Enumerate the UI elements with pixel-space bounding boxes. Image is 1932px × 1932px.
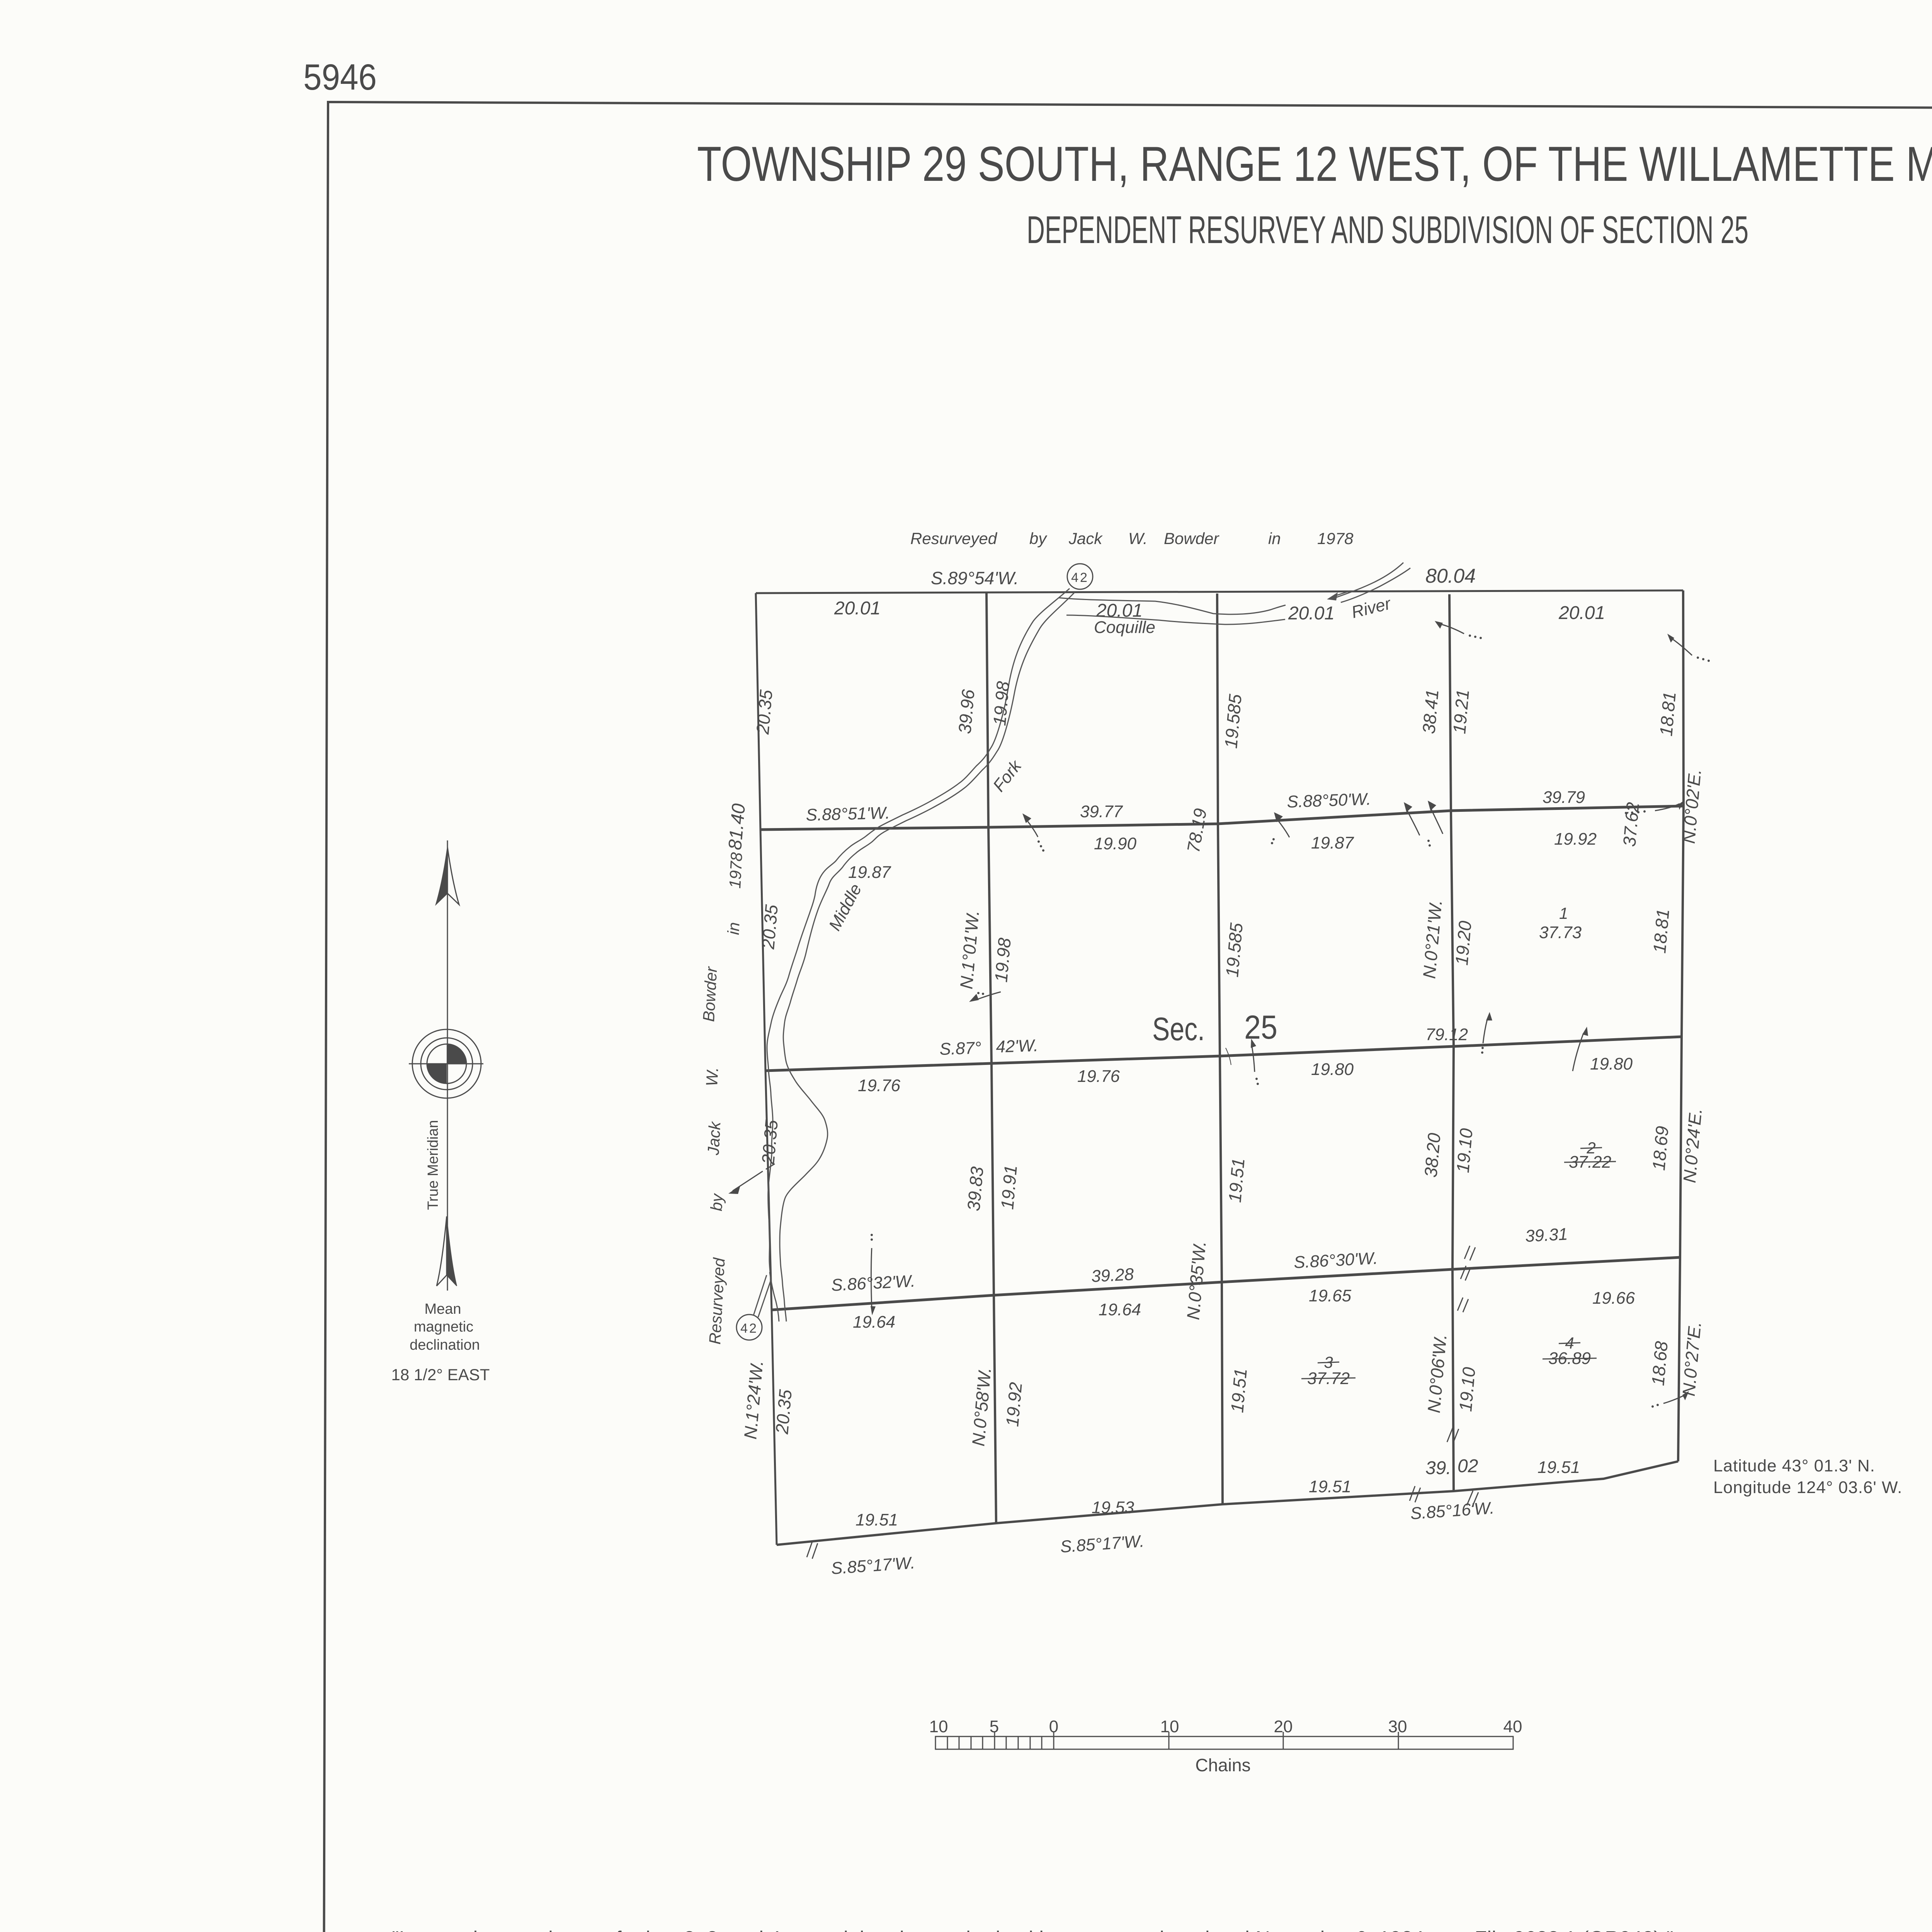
svg-text:20.01: 20.01 (1288, 603, 1335, 624)
svg-text:5: 5 (990, 1717, 999, 1736)
svg-text:39.79: 39.79 (1543, 788, 1585, 807)
svg-text:N.0°58'W.: N.0°58'W. (968, 1367, 995, 1447)
svg-text:19.51: 19.51 (1309, 1477, 1351, 1496)
svg-text:N.0°27'E.: N.0°27'E. (1679, 1321, 1705, 1397)
svg-text:19.21: 19.21 (1449, 689, 1473, 735)
svg-text:19.51: 19.51 (1227, 1367, 1251, 1413)
svg-text:19.87: 19.87 (1311, 833, 1354, 852)
svg-text:19.76: 19.76 (858, 1076, 901, 1095)
svg-text:79.12: 79.12 (1425, 1025, 1468, 1044)
svg-text:18.81: 18.81 (1656, 691, 1680, 737)
svg-text:River: River (1350, 594, 1394, 622)
svg-text:N.0°35'W.: N.0°35'W. (1183, 1240, 1210, 1321)
svg-text:20.01: 20.01 (834, 598, 881, 619)
svg-text:1: 1 (1559, 904, 1568, 922)
svg-text:declination: declination (410, 1337, 480, 1353)
svg-text:19.51: 19.51 (855, 1510, 898, 1529)
svg-text:N.0°24'E.: N.0°24'E. (1679, 1107, 1706, 1184)
svg-text:37.73: 37.73 (1539, 923, 1582, 942)
svg-text:19.98: 19.98 (991, 937, 1015, 983)
svg-text:in: in (724, 922, 743, 935)
svg-text:19.90: 19.90 (1094, 834, 1137, 853)
svg-text:N.0°06'W.: N.0°06'W. (1423, 1333, 1451, 1414)
svg-text:S.88°51'W.: S.88°51'W. (806, 803, 890, 825)
svg-text:19.51: 19.51 (1537, 1458, 1580, 1477)
svg-text:39.31: 39.31 (1525, 1225, 1568, 1246)
svg-text:S.89°54'W.: S.89°54'W. (931, 568, 1019, 588)
svg-text:Resurveyed: Resurveyed (910, 529, 998, 548)
svg-text:18.69: 18.69 (1648, 1125, 1672, 1171)
svg-text:10: 10 (929, 1717, 948, 1736)
svg-text:19.585: 19.585 (1221, 693, 1245, 749)
svg-text:DEPENDENT RESURVEY AND SUBDIVI: DEPENDENT RESURVEY AND SUBDIVISION OF SE… (1027, 208, 1748, 252)
svg-text:20.35: 20.35 (772, 1389, 796, 1435)
svg-text:Jack: Jack (1068, 529, 1103, 548)
svg-text:TOWNSHIP 29 SOUTH, RANGE 12 WE: TOWNSHIP 29 SOUTH, RANGE 12 WEST, OF THE… (697, 136, 1932, 191)
svg-text:"Lot numbers and areas for lot: "Lot numbers and areas for lots 2, 3, an… (392, 1927, 1673, 1932)
svg-text:19.65: 19.65 (1309, 1286, 1352, 1305)
svg-text:19.64: 19.64 (1099, 1300, 1141, 1319)
svg-text:1978: 1978 (1317, 529, 1354, 548)
svg-text:N.1°24'W.: N.1°24'W. (740, 1360, 767, 1440)
svg-text:39.96: 39.96 (954, 689, 978, 735)
svg-text:20.35: 20.35 (758, 904, 782, 951)
svg-text:25: 25 (1244, 1009, 1277, 1046)
svg-text:20.35: 20.35 (758, 1119, 782, 1166)
svg-text:S.85°16'W.: S.85°16'W. (1410, 1498, 1495, 1523)
svg-text:Bowder: Bowder (1164, 529, 1219, 548)
svg-text:19.76: 19.76 (1077, 1067, 1120, 1086)
svg-text:19.10: 19.10 (1452, 1128, 1476, 1174)
svg-text:Mean: Mean (424, 1301, 461, 1317)
svg-text:N.0°21'W.: N.0°21'W. (1419, 899, 1446, 980)
svg-text:Latitude 43° 01.3' N.: Latitude 43° 01.3' N. (1713, 1456, 1875, 1475)
svg-text:W.: W. (702, 1066, 722, 1087)
svg-text:10: 10 (1160, 1717, 1179, 1736)
svg-text:20.35: 20.35 (752, 689, 776, 736)
svg-text:19.20: 19.20 (1451, 920, 1475, 966)
svg-text:18 1/2° EAST: 18 1/2° EAST (391, 1366, 490, 1384)
svg-text:30: 30 (1388, 1717, 1407, 1736)
svg-text:19.80: 19.80 (1590, 1054, 1633, 1073)
svg-text:19.585: 19.585 (1222, 922, 1247, 978)
svg-text:39.: 39. (1425, 1458, 1451, 1478)
svg-text:39.83: 39.83 (963, 1166, 987, 1212)
svg-text:magnetic: magnetic (414, 1319, 473, 1335)
svg-text:0: 0 (1049, 1717, 1058, 1736)
svg-text:S.87°: S.87° (939, 1038, 982, 1059)
svg-text:Longitude 124° 03.6' W.: Longitude 124° 03.6' W. (1713, 1478, 1902, 1497)
svg-text:True Meridian: True Meridian (425, 1120, 441, 1210)
svg-text:19.10: 19.10 (1455, 1366, 1479, 1413)
svg-text:19.91: 19.91 (997, 1164, 1021, 1210)
svg-text:39.28: 39.28 (1091, 1265, 1134, 1286)
svg-text:42: 42 (1071, 570, 1089, 585)
svg-text:19.98: 19.98 (989, 680, 1013, 727)
svg-text:by: by (1029, 529, 1048, 548)
svg-text:37.62: 37.62 (1619, 801, 1643, 847)
svg-text:42: 42 (740, 1321, 758, 1336)
svg-text:39.77: 39.77 (1080, 802, 1123, 821)
svg-text:Chains: Chains (1195, 1755, 1250, 1775)
svg-text:38.20: 38.20 (1420, 1132, 1444, 1179)
svg-text:19.66: 19.66 (1592, 1289, 1635, 1308)
svg-text:Jack: Jack (704, 1121, 724, 1156)
svg-text:Resurveyed: Resurveyed (706, 1257, 728, 1345)
svg-text:19.64: 19.64 (853, 1313, 895, 1332)
svg-text:19.92: 19.92 (1002, 1381, 1026, 1427)
svg-text:20.01: 20.01 (1558, 603, 1605, 623)
svg-text:19.80: 19.80 (1311, 1060, 1354, 1079)
svg-text:19.92: 19.92 (1554, 830, 1597, 849)
svg-text:S.85°17'W.: S.85°17'W. (830, 1553, 915, 1578)
svg-text:Sec.: Sec. (1152, 1011, 1205, 1047)
svg-text:19.53: 19.53 (1092, 1498, 1134, 1517)
svg-text:18.68: 18.68 (1648, 1340, 1672, 1387)
svg-text:02: 02 (1458, 1456, 1478, 1476)
svg-text:Bowder: Bowder (699, 966, 720, 1022)
svg-text:1978: 1978 (726, 852, 746, 889)
svg-text:S.88°50'W.: S.88°50'W. (1287, 789, 1371, 811)
svg-text:Coquille: Coquille (1094, 618, 1155, 637)
svg-text:in: in (1268, 529, 1281, 548)
svg-text:38.41: 38.41 (1418, 689, 1442, 735)
svg-text:5946: 5946 (303, 57, 377, 98)
svg-text:N.1°01'W.: N.1°01'W. (956, 910, 983, 990)
svg-text:W.: W. (1128, 529, 1148, 548)
svg-text:S.86°32'W.: S.86°32'W. (831, 1272, 916, 1295)
svg-text:78.19: 78.19 (1183, 807, 1211, 854)
svg-text:20: 20 (1274, 1717, 1293, 1736)
svg-text:81.40: 81.40 (725, 803, 749, 851)
svg-text:19.51: 19.51 (1225, 1157, 1248, 1203)
svg-text:S.86°30'W.: S.86°30'W. (1293, 1249, 1378, 1272)
svg-text:S.85°17'W.: S.85°17'W. (1060, 1532, 1145, 1556)
svg-text:80.04: 80.04 (1425, 565, 1476, 587)
svg-text:Fork: Fork (989, 756, 1026, 795)
svg-text:18.81: 18.81 (1649, 908, 1673, 954)
svg-text:40: 40 (1503, 1717, 1522, 1736)
svg-text:Middle: Middle (825, 881, 866, 934)
svg-text:19.87: 19.87 (848, 863, 891, 882)
svg-text:42'W.: 42'W. (996, 1036, 1039, 1056)
svg-text:by: by (707, 1192, 726, 1212)
